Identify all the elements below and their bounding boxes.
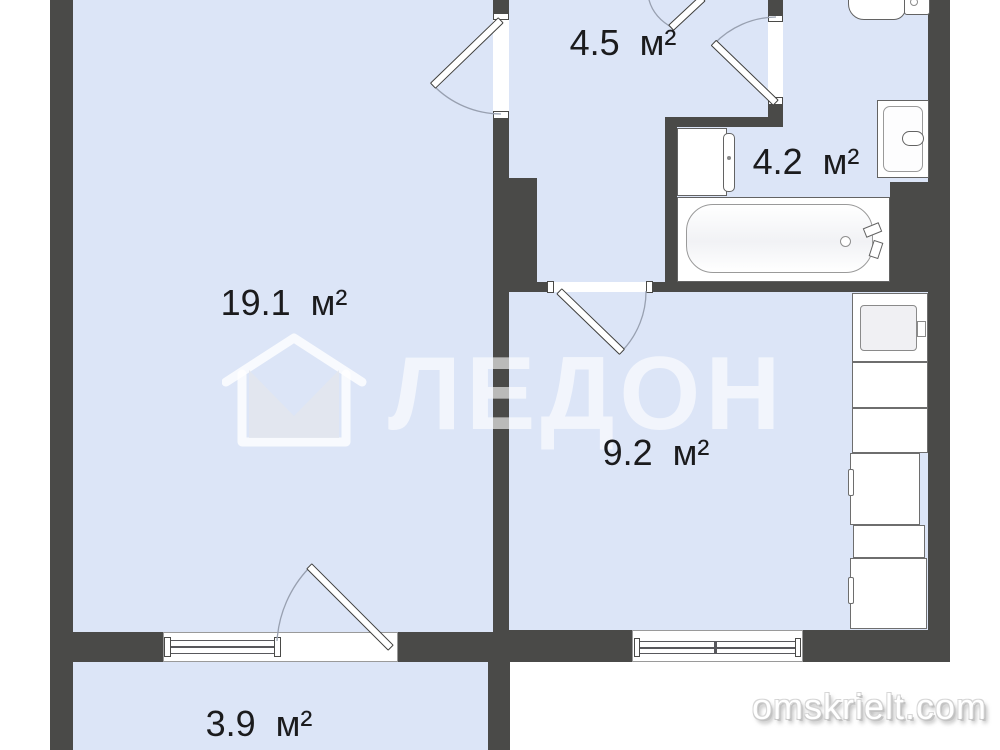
bathtub-drain-icon bbox=[840, 236, 851, 247]
wall-living-bottom-right bbox=[398, 632, 495, 662]
window-end-cap bbox=[274, 637, 281, 657]
door-jamb bbox=[646, 281, 653, 293]
wall-kitchen-bottom-left bbox=[509, 630, 632, 662]
fridge bbox=[850, 558, 927, 629]
hallway-floor bbox=[537, 178, 665, 282]
washing-machine-knob-icon bbox=[727, 156, 731, 160]
washing-machine-panel bbox=[723, 133, 735, 192]
room-label-bathroom: 4.2 м² bbox=[753, 141, 860, 183]
room-label-living: 19.1 м² bbox=[221, 282, 348, 324]
kitchen-cabinet bbox=[852, 408, 928, 453]
kitchen-appliance bbox=[850, 453, 920, 525]
door-jamb bbox=[547, 281, 554, 293]
kitchen-window bbox=[637, 641, 798, 654]
wall-duct bbox=[509, 178, 537, 292]
living-room-window bbox=[167, 640, 281, 654]
sink-faucet-icon bbox=[902, 131, 924, 146]
living-door-opening bbox=[493, 19, 509, 112]
kitchen-sink-unit bbox=[852, 293, 928, 362]
wall-bath-niche-top bbox=[665, 117, 783, 127]
site-watermark: omskrielt.com bbox=[752, 686, 987, 728]
wall-bath-niche-left bbox=[665, 127, 677, 292]
window-glass-line bbox=[168, 646, 280, 648]
agency-watermark: ЛЕДОН bbox=[388, 342, 785, 446]
toilet bbox=[848, 0, 906, 20]
wall-bath-right-chunk bbox=[890, 182, 950, 292]
wall-outer-right-kitchen bbox=[928, 292, 950, 662]
wall-living-bottom-left bbox=[50, 632, 163, 662]
wall-hall-bath-stub bbox=[768, 0, 783, 16]
window-end-cap bbox=[795, 638, 801, 657]
window-end-cap bbox=[634, 638, 640, 657]
bathroom-sink bbox=[877, 100, 929, 178]
kitchen-cabinet bbox=[852, 362, 928, 408]
bathtub bbox=[677, 197, 890, 282]
kitchen-door-opening bbox=[553, 282, 647, 292]
window-end-cap bbox=[164, 637, 171, 657]
bathroom-door-opening bbox=[768, 21, 783, 98]
house-envelope-icon bbox=[222, 330, 370, 458]
washing-machine bbox=[677, 128, 727, 196]
kitchen-faucet-icon bbox=[917, 321, 926, 337]
room-label-hallway: 4.5 м² bbox=[570, 22, 677, 64]
room-label-balcony: 3.9 м² bbox=[206, 703, 313, 745]
wall-kitchen-bottom-right bbox=[803, 630, 950, 662]
floor-plan: ЛЕДОН 19.1 м² 4.5 м² 4.2 м² 9.2 м² 3.9 м… bbox=[0, 0, 1000, 750]
door-jamb bbox=[493, 111, 509, 119]
appliance-handle-icon bbox=[848, 469, 854, 496]
kitchen-cabinet bbox=[853, 525, 925, 558]
hallway-floor bbox=[507, 117, 665, 178]
wall-living-hall-stub bbox=[493, 0, 509, 14]
door-jamb bbox=[768, 15, 783, 22]
room-label-kitchen: 9.2 м² bbox=[603, 432, 710, 474]
appliance-handle-icon bbox=[848, 577, 854, 604]
window-mullion bbox=[714, 641, 717, 654]
kitchen-sink-basin bbox=[860, 305, 917, 351]
window-glass-line bbox=[638, 647, 797, 649]
